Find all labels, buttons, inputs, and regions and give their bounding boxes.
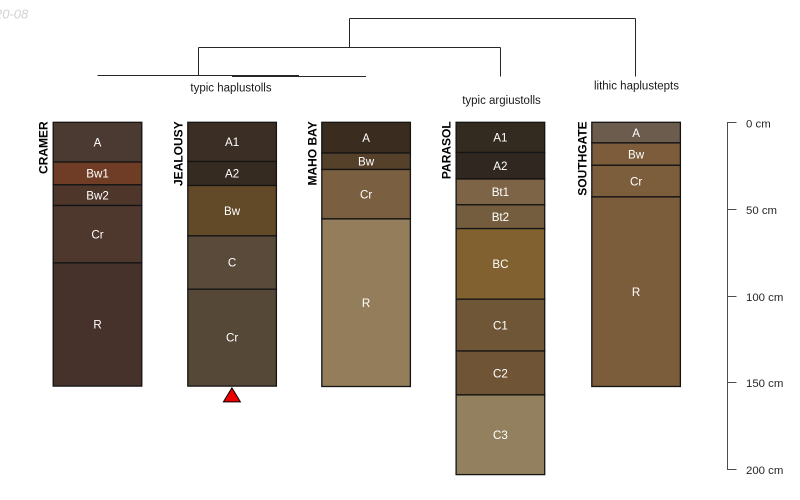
svg-text:R: R (632, 286, 640, 299)
svg-text:Cr: Cr (360, 188, 372, 201)
svg-text:Bw2: Bw2 (86, 189, 109, 202)
svg-text:R: R (362, 297, 370, 310)
svg-text:PARASOL: PARASOL (440, 121, 454, 179)
svg-text:CRAMER: CRAMER (37, 121, 51, 174)
svg-text:Bw: Bw (628, 148, 645, 161)
svg-text:100 cm: 100 cm (746, 292, 783, 304)
svg-text:Bw1: Bw1 (86, 168, 109, 181)
svg-text:MAHO BAY: MAHO BAY (305, 121, 319, 185)
svg-text:150 cm: 150 cm (746, 378, 783, 390)
svg-text:Bt2: Bt2 (492, 211, 509, 224)
svg-text:BC: BC (492, 258, 508, 271)
svg-text:A: A (94, 136, 102, 149)
svg-text:A: A (362, 132, 370, 145)
svg-text:0 cm: 0 cm (746, 118, 771, 130)
svg-text:Cr: Cr (226, 331, 238, 344)
svg-text:Cr: Cr (91, 228, 103, 241)
svg-text:A2: A2 (493, 160, 507, 173)
svg-text:typic argiustolls: typic argiustolls (462, 95, 541, 107)
svg-text:Bw: Bw (358, 155, 375, 168)
svg-text:Cr: Cr (630, 175, 642, 188)
svg-text:typic haplustolls: typic haplustolls (190, 83, 271, 95)
svg-text:200 cm: 200 cm (746, 465, 783, 477)
svg-text:A: A (632, 127, 640, 140)
svg-text:C2: C2 (493, 368, 508, 381)
svg-text:50 cm: 50 cm (746, 205, 777, 217)
svg-text:A1: A1 (493, 132, 507, 145)
svg-text:JEALOUSY: JEALOUSY (171, 121, 185, 186)
svg-text:C3: C3 (493, 429, 508, 442)
svg-text:C1: C1 (493, 319, 508, 332)
svg-text:Bw: Bw (224, 205, 241, 218)
svg-text:A1: A1 (225, 136, 239, 149)
svg-text:R: R (93, 319, 101, 332)
svg-text:SOUTHGATE: SOUTHGATE (575, 121, 589, 195)
svg-text:C: C (228, 257, 236, 270)
svg-text:Bt1: Bt1 (492, 186, 509, 199)
svg-text:lithic haplustepts: lithic haplustepts (594, 81, 679, 93)
svg-text:A2: A2 (225, 168, 239, 181)
svg-text:2020-08: 2020-08 (0, 7, 29, 22)
